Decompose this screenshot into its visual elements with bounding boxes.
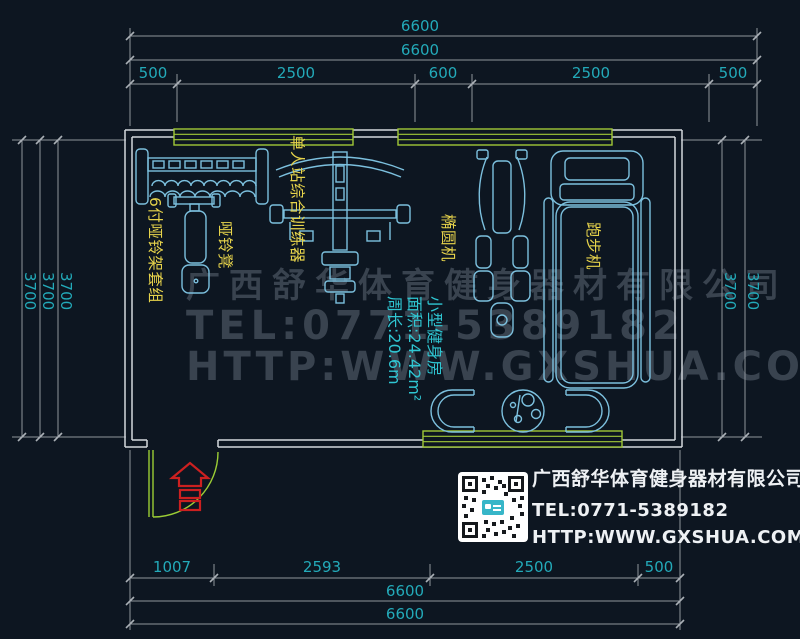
dim-right-2: 3700 xyxy=(744,272,762,310)
dumbbell-rack xyxy=(136,149,268,204)
qr-code xyxy=(458,472,528,542)
window-top-left xyxy=(174,129,353,145)
company-tel: TEL:0771-5389182 xyxy=(532,500,800,521)
label-elliptical: 椭圆机 xyxy=(439,214,457,262)
dim-bottom-seg-2: 2593 xyxy=(303,558,341,576)
entrance-marker-icon xyxy=(172,463,208,510)
dim-bottom-seg-4: 500 xyxy=(645,558,674,576)
dimension-chain-left: 3700 3700 3700 xyxy=(12,136,126,441)
dim-top-seg-2: 2500 xyxy=(277,64,315,82)
dim-bottom-total-inner: 6600 xyxy=(386,582,424,600)
qr-center-logo xyxy=(482,500,504,515)
dim-right-1: 3700 xyxy=(721,272,739,310)
dim-top-total-inner: 6600 xyxy=(401,41,439,59)
accessory-items xyxy=(431,390,609,432)
label-treadmill: 跑步机 xyxy=(584,222,602,270)
dim-bottom-seg-1: 1007 xyxy=(153,558,191,576)
label-single-station-trainer: 单人站综合训练器 xyxy=(288,135,306,263)
company-url: HTTP:WWW.GXSHUA.COM xyxy=(532,527,800,548)
label-dumbbell-bench: 哑铃凳 xyxy=(216,221,234,269)
dim-top-seg-1: 500 xyxy=(139,64,168,82)
accessory-ball xyxy=(502,390,544,432)
room-info-perimeter: 周长:20.6m xyxy=(385,296,404,385)
window-bottom xyxy=(423,431,622,447)
dim-left-3: 3700 xyxy=(57,272,75,310)
dim-bottom-seg-3: 2500 xyxy=(515,558,553,576)
label-dumbbell-rack: 6付哑铃架套组 xyxy=(146,197,164,303)
dim-top-seg-3: 600 xyxy=(429,64,458,82)
accessory-c-shape xyxy=(431,390,474,432)
dim-left-2: 3700 xyxy=(39,272,57,310)
dimension-chain-top: 6600 6600 500 2500 600 2500 500 xyxy=(126,17,761,126)
watermark-url: HTTP:WWW.GXSHUA.COM xyxy=(186,344,800,390)
door xyxy=(149,450,218,517)
dim-top-seg-5: 500 xyxy=(719,64,748,82)
window-top-right xyxy=(398,129,612,145)
door-swing-arc xyxy=(153,452,218,517)
room-info-name: 小型健身房 xyxy=(425,296,444,376)
room-info-area: 面积:24.42m² xyxy=(405,296,424,401)
dim-top-total-outer: 6600 xyxy=(401,17,439,35)
watermark-company-name: 广西舒华体育健身器材有限公司 xyxy=(186,266,788,306)
dim-left-1: 3700 xyxy=(21,272,39,310)
company-name: 广西舒华体育健身器材有限公司 xyxy=(532,468,800,491)
company-info-block: 广西舒华体育健身器材有限公司 TEL:0771-5389182 HTTP:WWW… xyxy=(532,468,800,548)
accessory-d-shape xyxy=(566,390,609,432)
dim-bottom-total-outer: 6600 xyxy=(386,605,424,623)
qr-pattern xyxy=(458,472,528,542)
cad-floor-plan: 广西舒华体育健身器材有限公司 TEL:0771-5389182 HTTP:WWW… xyxy=(0,0,800,639)
dim-top-seg-4: 2500 xyxy=(572,64,610,82)
